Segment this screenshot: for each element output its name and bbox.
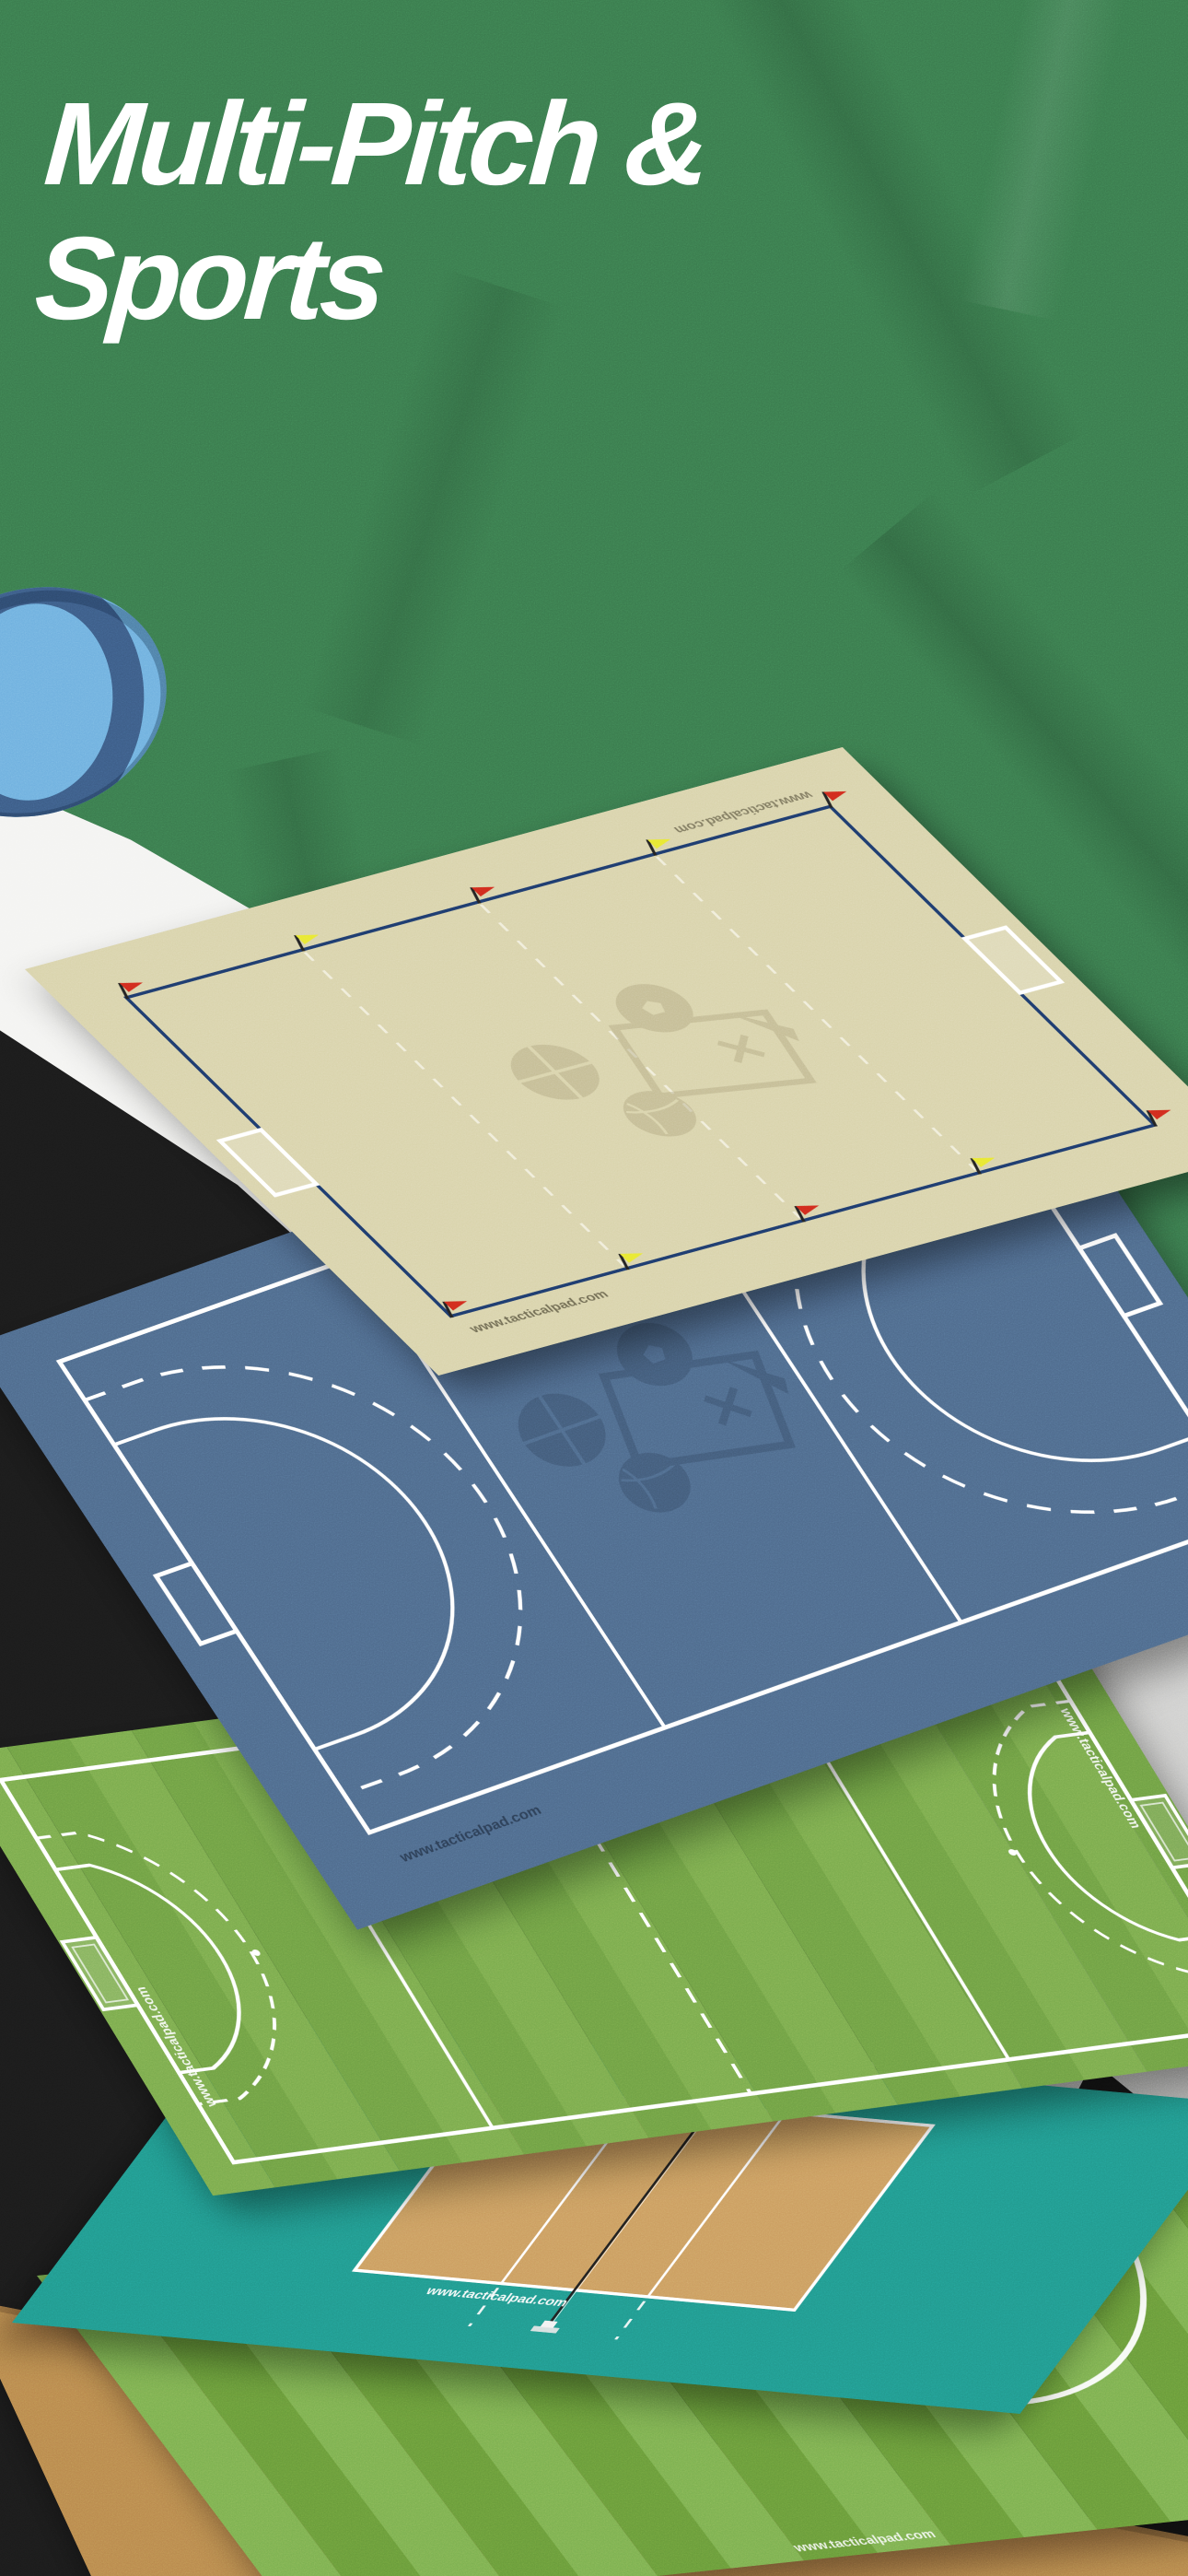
page-title: Multi-Pitch & Sports (31, 77, 711, 346)
page-title-line-2: Sports (31, 212, 701, 346)
promo-page: www.tacticalpad.com www.tacticalpad.com (0, 0, 1188, 2576)
paper-fold (779, 0, 1188, 357)
page-title-line-1: Multi-Pitch & (41, 77, 710, 212)
